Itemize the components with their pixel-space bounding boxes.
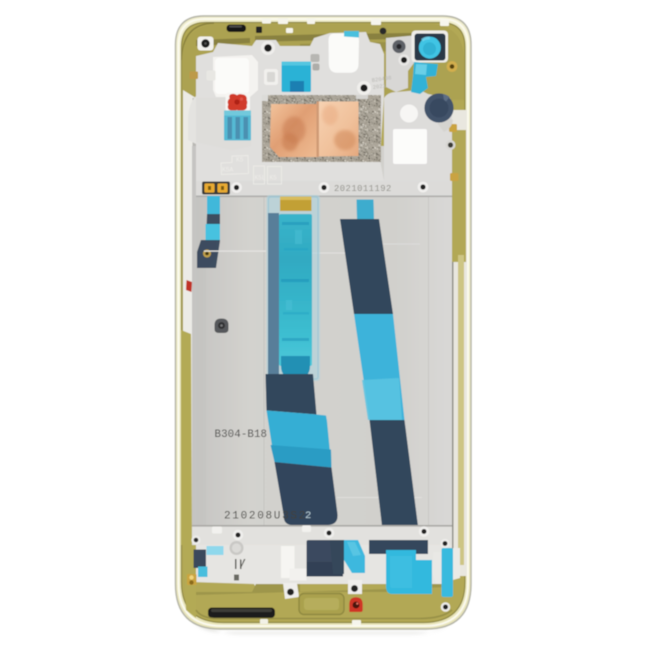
svg-text:K5: K5 (236, 157, 244, 164)
svg-text:2021011192: 2021011192 (334, 184, 392, 194)
svg-text:K5L: K5L (255, 175, 266, 182)
svg-text:K5: K5 (270, 175, 278, 182)
svg-text:210208U3S2: 210208U3S2 (224, 511, 307, 523)
svg-text:K5A: K5A (222, 167, 234, 174)
svg-text:2: 2 (305, 510, 311, 522)
svg-text:B304-B18: B304-B18 (215, 429, 268, 441)
